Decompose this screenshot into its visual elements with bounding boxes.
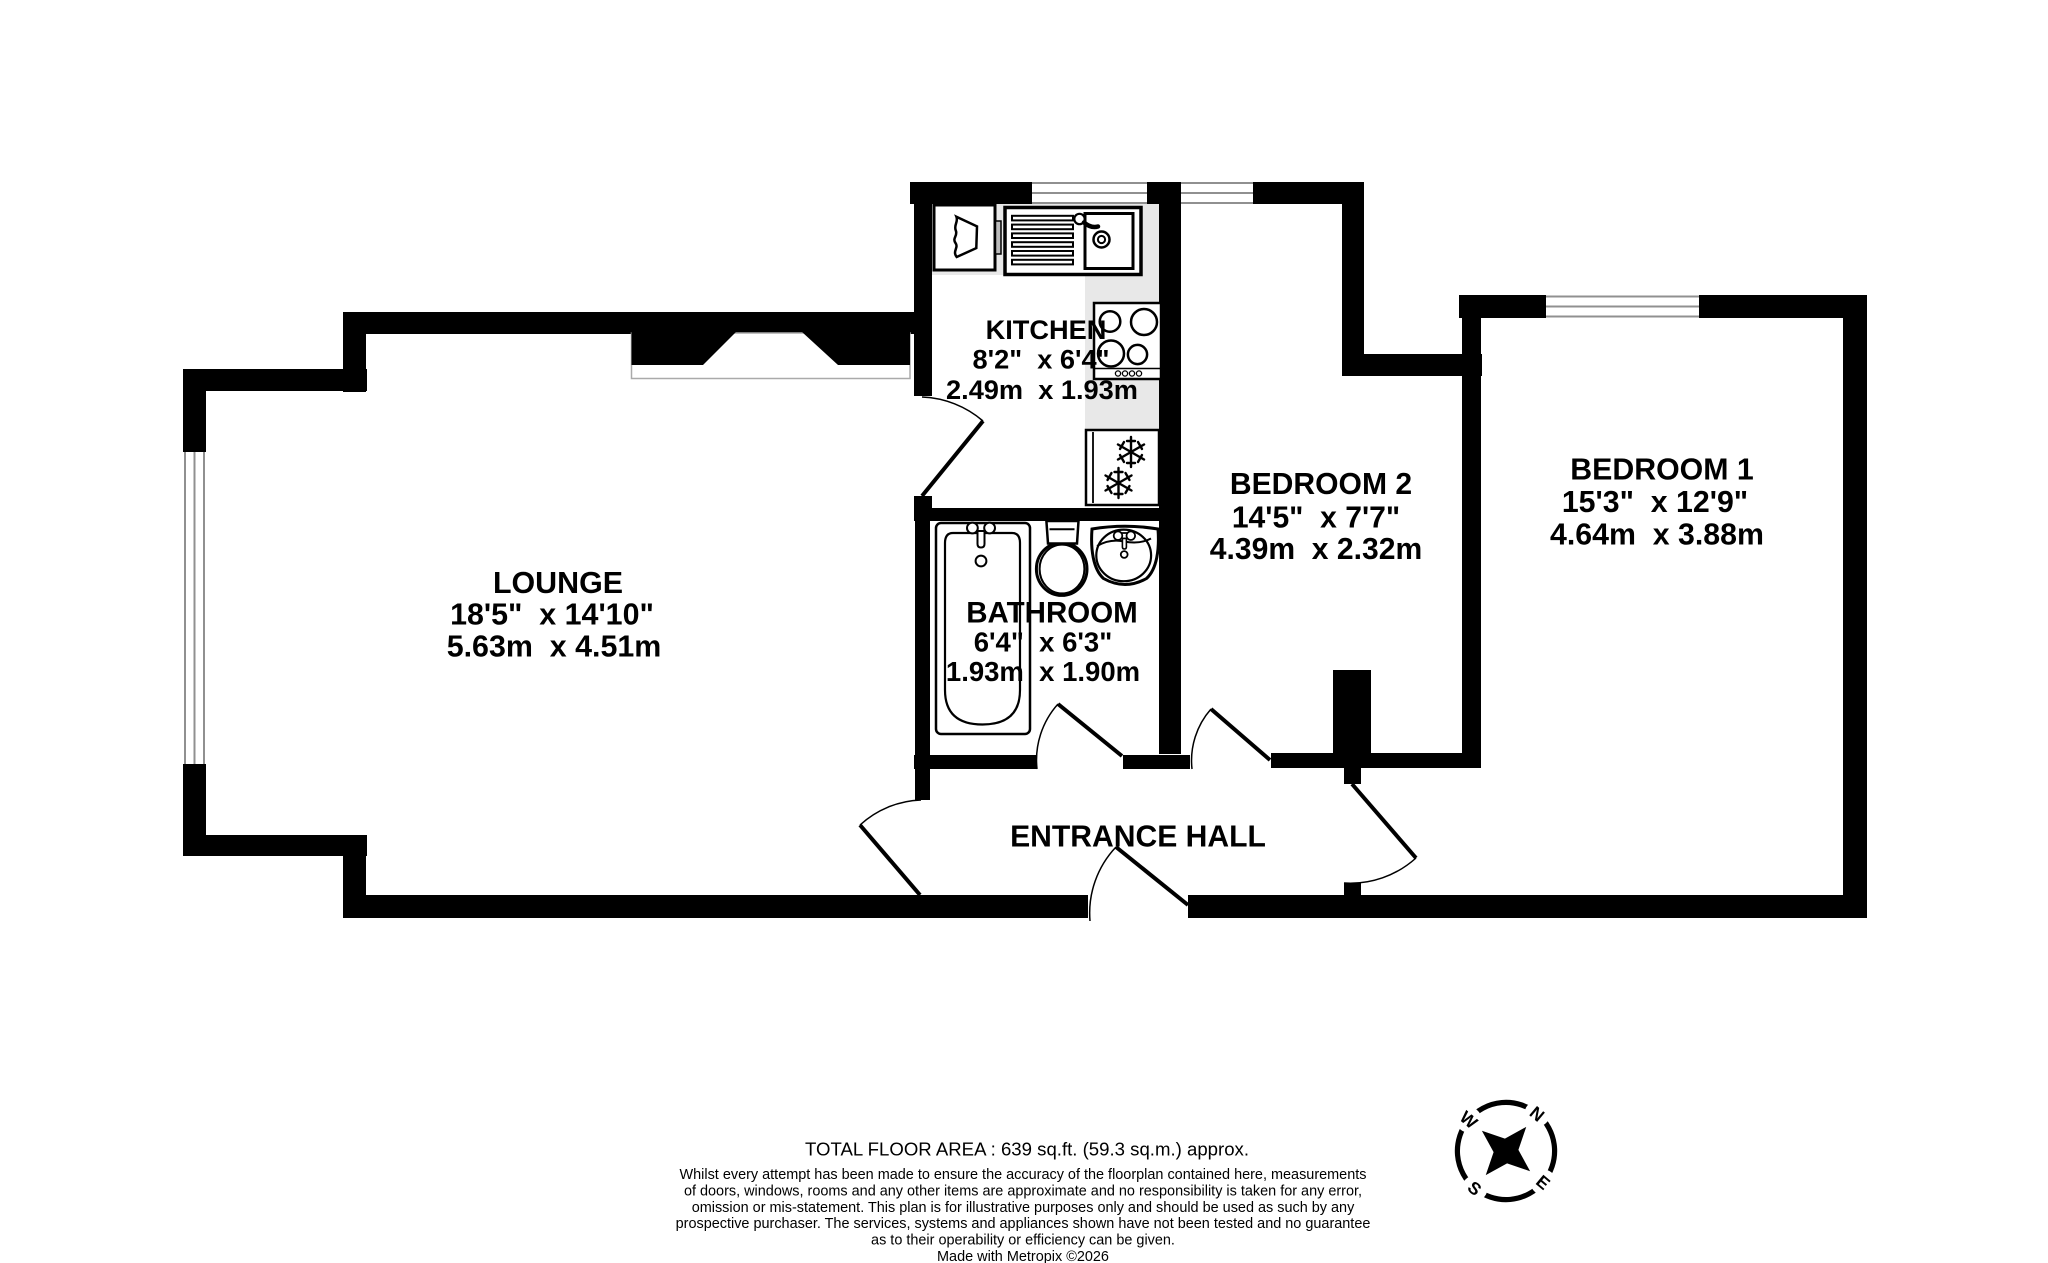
svg-text:15'3" x 12'9": 15'3" x 12'9" — [1562, 486, 1748, 519]
svg-text:BEDROOM 1: BEDROOM 1 — [1570, 454, 1753, 487]
svg-text:BATHROOM: BATHROOM — [966, 596, 1138, 629]
svg-text:2.49m x 1.93m: 2.49m x 1.93m — [946, 374, 1138, 405]
svg-text:BEDROOM 2: BEDROOM 2 — [1230, 468, 1412, 501]
svg-text:omission or mis-statement. Thi: omission or mis-statement. This plan is … — [692, 1200, 1355, 1216]
svg-text:4.64m x 3.88m: 4.64m x 3.88m — [1550, 519, 1764, 552]
svg-text:1.93m x 1.90m: 1.93m x 1.90m — [946, 656, 1140, 687]
svg-text:TOTAL FLOOR AREA : 639 sq.ft.: TOTAL FLOOR AREA : 639 sq.ft. (59.3 sq.m… — [805, 1139, 1249, 1160]
svg-text:18'5" x 14'10": 18'5" x 14'10" — [450, 598, 654, 632]
svg-text:Made with Metropix ©2026: Made with Metropix ©2026 — [937, 1249, 1109, 1263]
svg-text:5.63m x 4.51m: 5.63m x 4.51m — [447, 630, 662, 664]
svg-text:4.39m x 2.32m: 4.39m x 2.32m — [1210, 533, 1422, 566]
svg-text:14'5" x 7'7": 14'5" x 7'7" — [1232, 502, 1400, 535]
svg-text:6'4" x 6'3": 6'4" x 6'3" — [974, 626, 1113, 657]
svg-text:KITCHEN: KITCHEN — [986, 314, 1107, 345]
svg-text:of doors, windows, rooms and a: of doors, windows, rooms and any other i… — [684, 1183, 1362, 1199]
svg-text:ENTRANCE HALL: ENTRANCE HALL — [1010, 820, 1266, 853]
svg-text:prospective purchaser. The ser: prospective purchaser. The services, sys… — [676, 1216, 1371, 1232]
svg-text:Whilst every attempt has been: Whilst every attempt has been made to en… — [680, 1167, 1367, 1183]
svg-text:LOUNGE: LOUNGE — [493, 566, 623, 600]
svg-text:8'2" x 6'4": 8'2" x 6'4" — [973, 344, 1110, 375]
svg-text:as to their operability or eff: as to their operability or efficiency ca… — [871, 1233, 1175, 1249]
